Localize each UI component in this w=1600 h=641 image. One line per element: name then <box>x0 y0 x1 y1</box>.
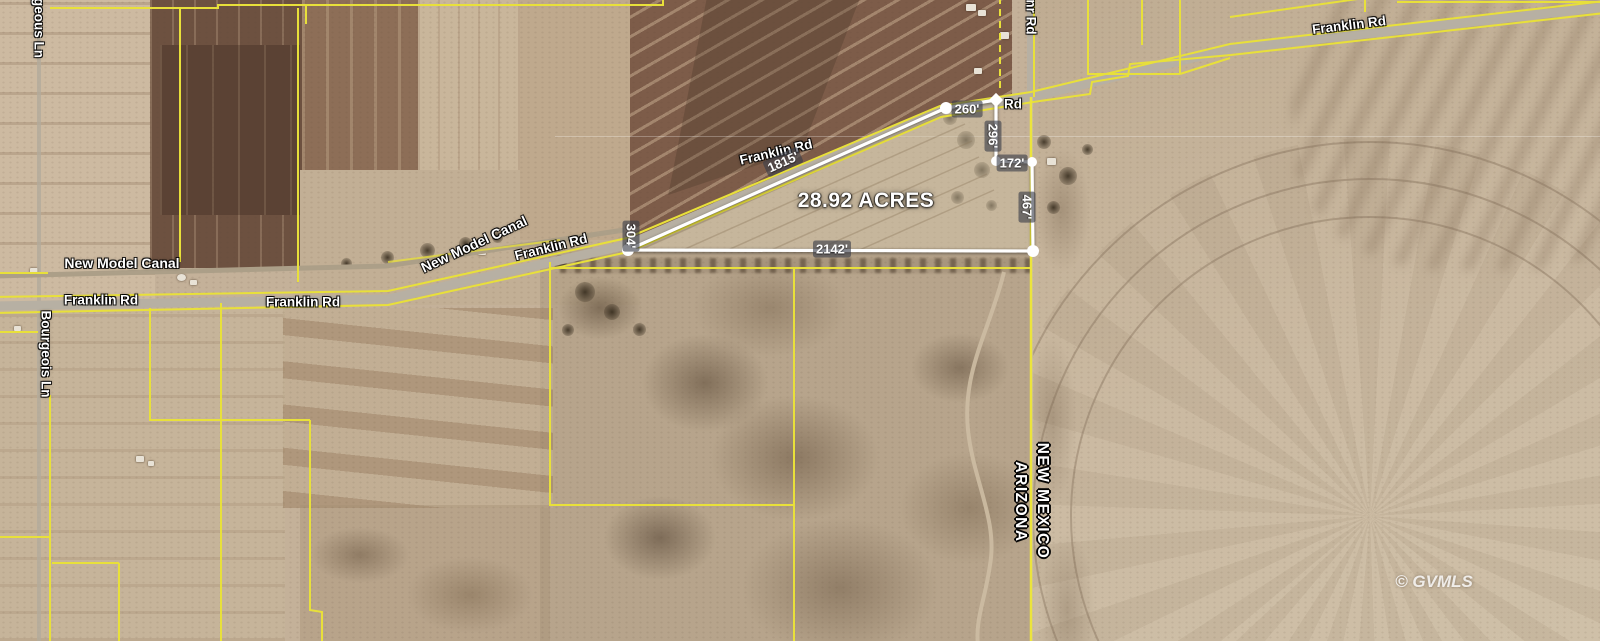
road-label-bourgeois-ln: Bourgeois Ln <box>39 311 54 398</box>
dimension-north-jog-right: 296' <box>985 121 1002 152</box>
dimension-south-side: 2142' <box>813 241 851 258</box>
road-label-bourgeous-ln-partial: geous Ln <box>32 0 47 58</box>
acreage-label: 28.92 ACRES <box>798 189 935 213</box>
road-label-nr-rd: nr Rd <box>1024 0 1039 35</box>
state-label-arizona: ARIZONA <box>1011 461 1029 542</box>
desert-wash <box>967 272 1004 641</box>
road-label-franklin-west-2: Franklin Rd <box>266 295 340 310</box>
boundary-vertex-nw[interactable] <box>940 102 952 114</box>
satellite-map[interactable]: Franklin Rd Franklin Rd Franklin Rd Fran… <box>0 0 1600 641</box>
road-label-rd-fragment: Rd <box>1004 97 1022 112</box>
dimension-east-side: 467' <box>1019 192 1036 223</box>
boundary-vertex-jog2[interactable] <box>1027 157 1037 167</box>
state-label-new-mexico: NEW MEXICO <box>1033 443 1051 560</box>
map-overlay <box>0 0 1600 641</box>
road-label-new-model-canal-west: New Model Canal <box>64 255 179 271</box>
gvmls-watermark: © GVMLS <box>1395 572 1473 592</box>
parcel-lines <box>0 0 1600 641</box>
dimension-west-side: 304' <box>623 221 640 252</box>
dimension-north-jog-bottom: 172' <box>997 155 1028 172</box>
boundary-vertex-se[interactable] <box>1027 245 1039 257</box>
road-label-franklin-west-1: Franklin Rd <box>64 293 138 308</box>
dimension-north-jog-top: 260' <box>952 101 983 118</box>
